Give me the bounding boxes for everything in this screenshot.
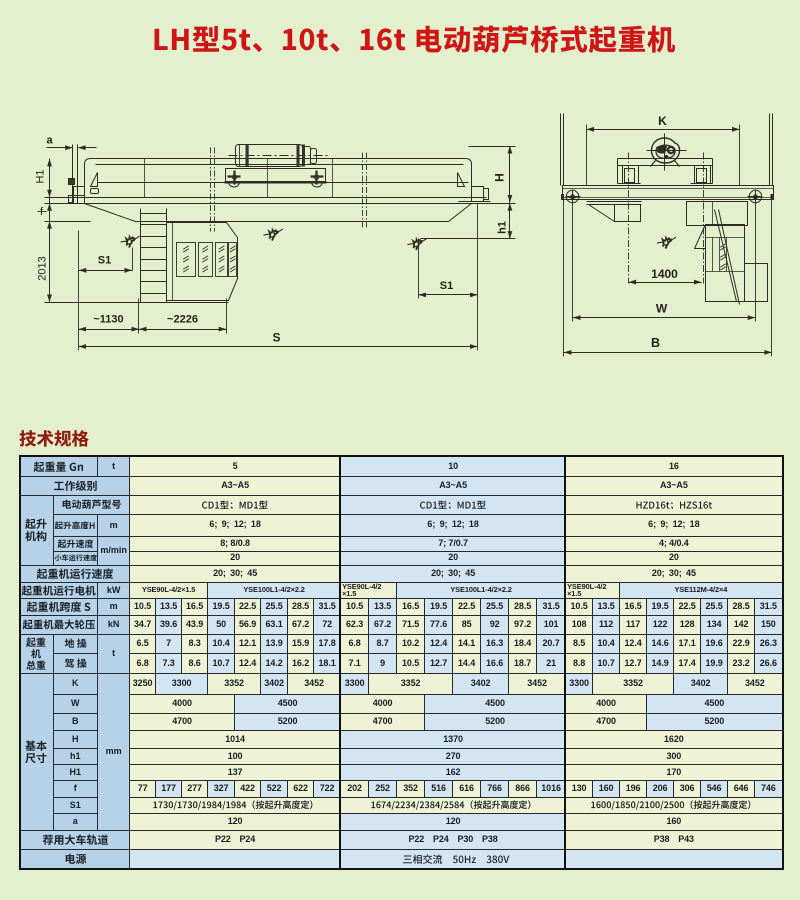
svg-text:1400: 1400 [651,267,678,281]
svg-text:2013: 2013 [37,256,49,280]
svg-text:S1: S1 [440,280,453,292]
svg-text:S: S [272,331,280,345]
svg-text:f: f [40,206,44,218]
svg-text:~1130: ~1130 [93,314,123,326]
svg-text:H1: H1 [35,169,47,183]
svg-text:a: a [46,135,53,147]
svg-text:h1: h1 [497,221,509,234]
svg-text:W: W [656,302,668,316]
svg-text:H: H [493,173,507,182]
svg-text:~2226: ~2226 [167,314,198,326]
svg-text:K: K [658,114,667,128]
svg-text:B: B [651,336,660,350]
svg-text:S1: S1 [98,255,111,267]
